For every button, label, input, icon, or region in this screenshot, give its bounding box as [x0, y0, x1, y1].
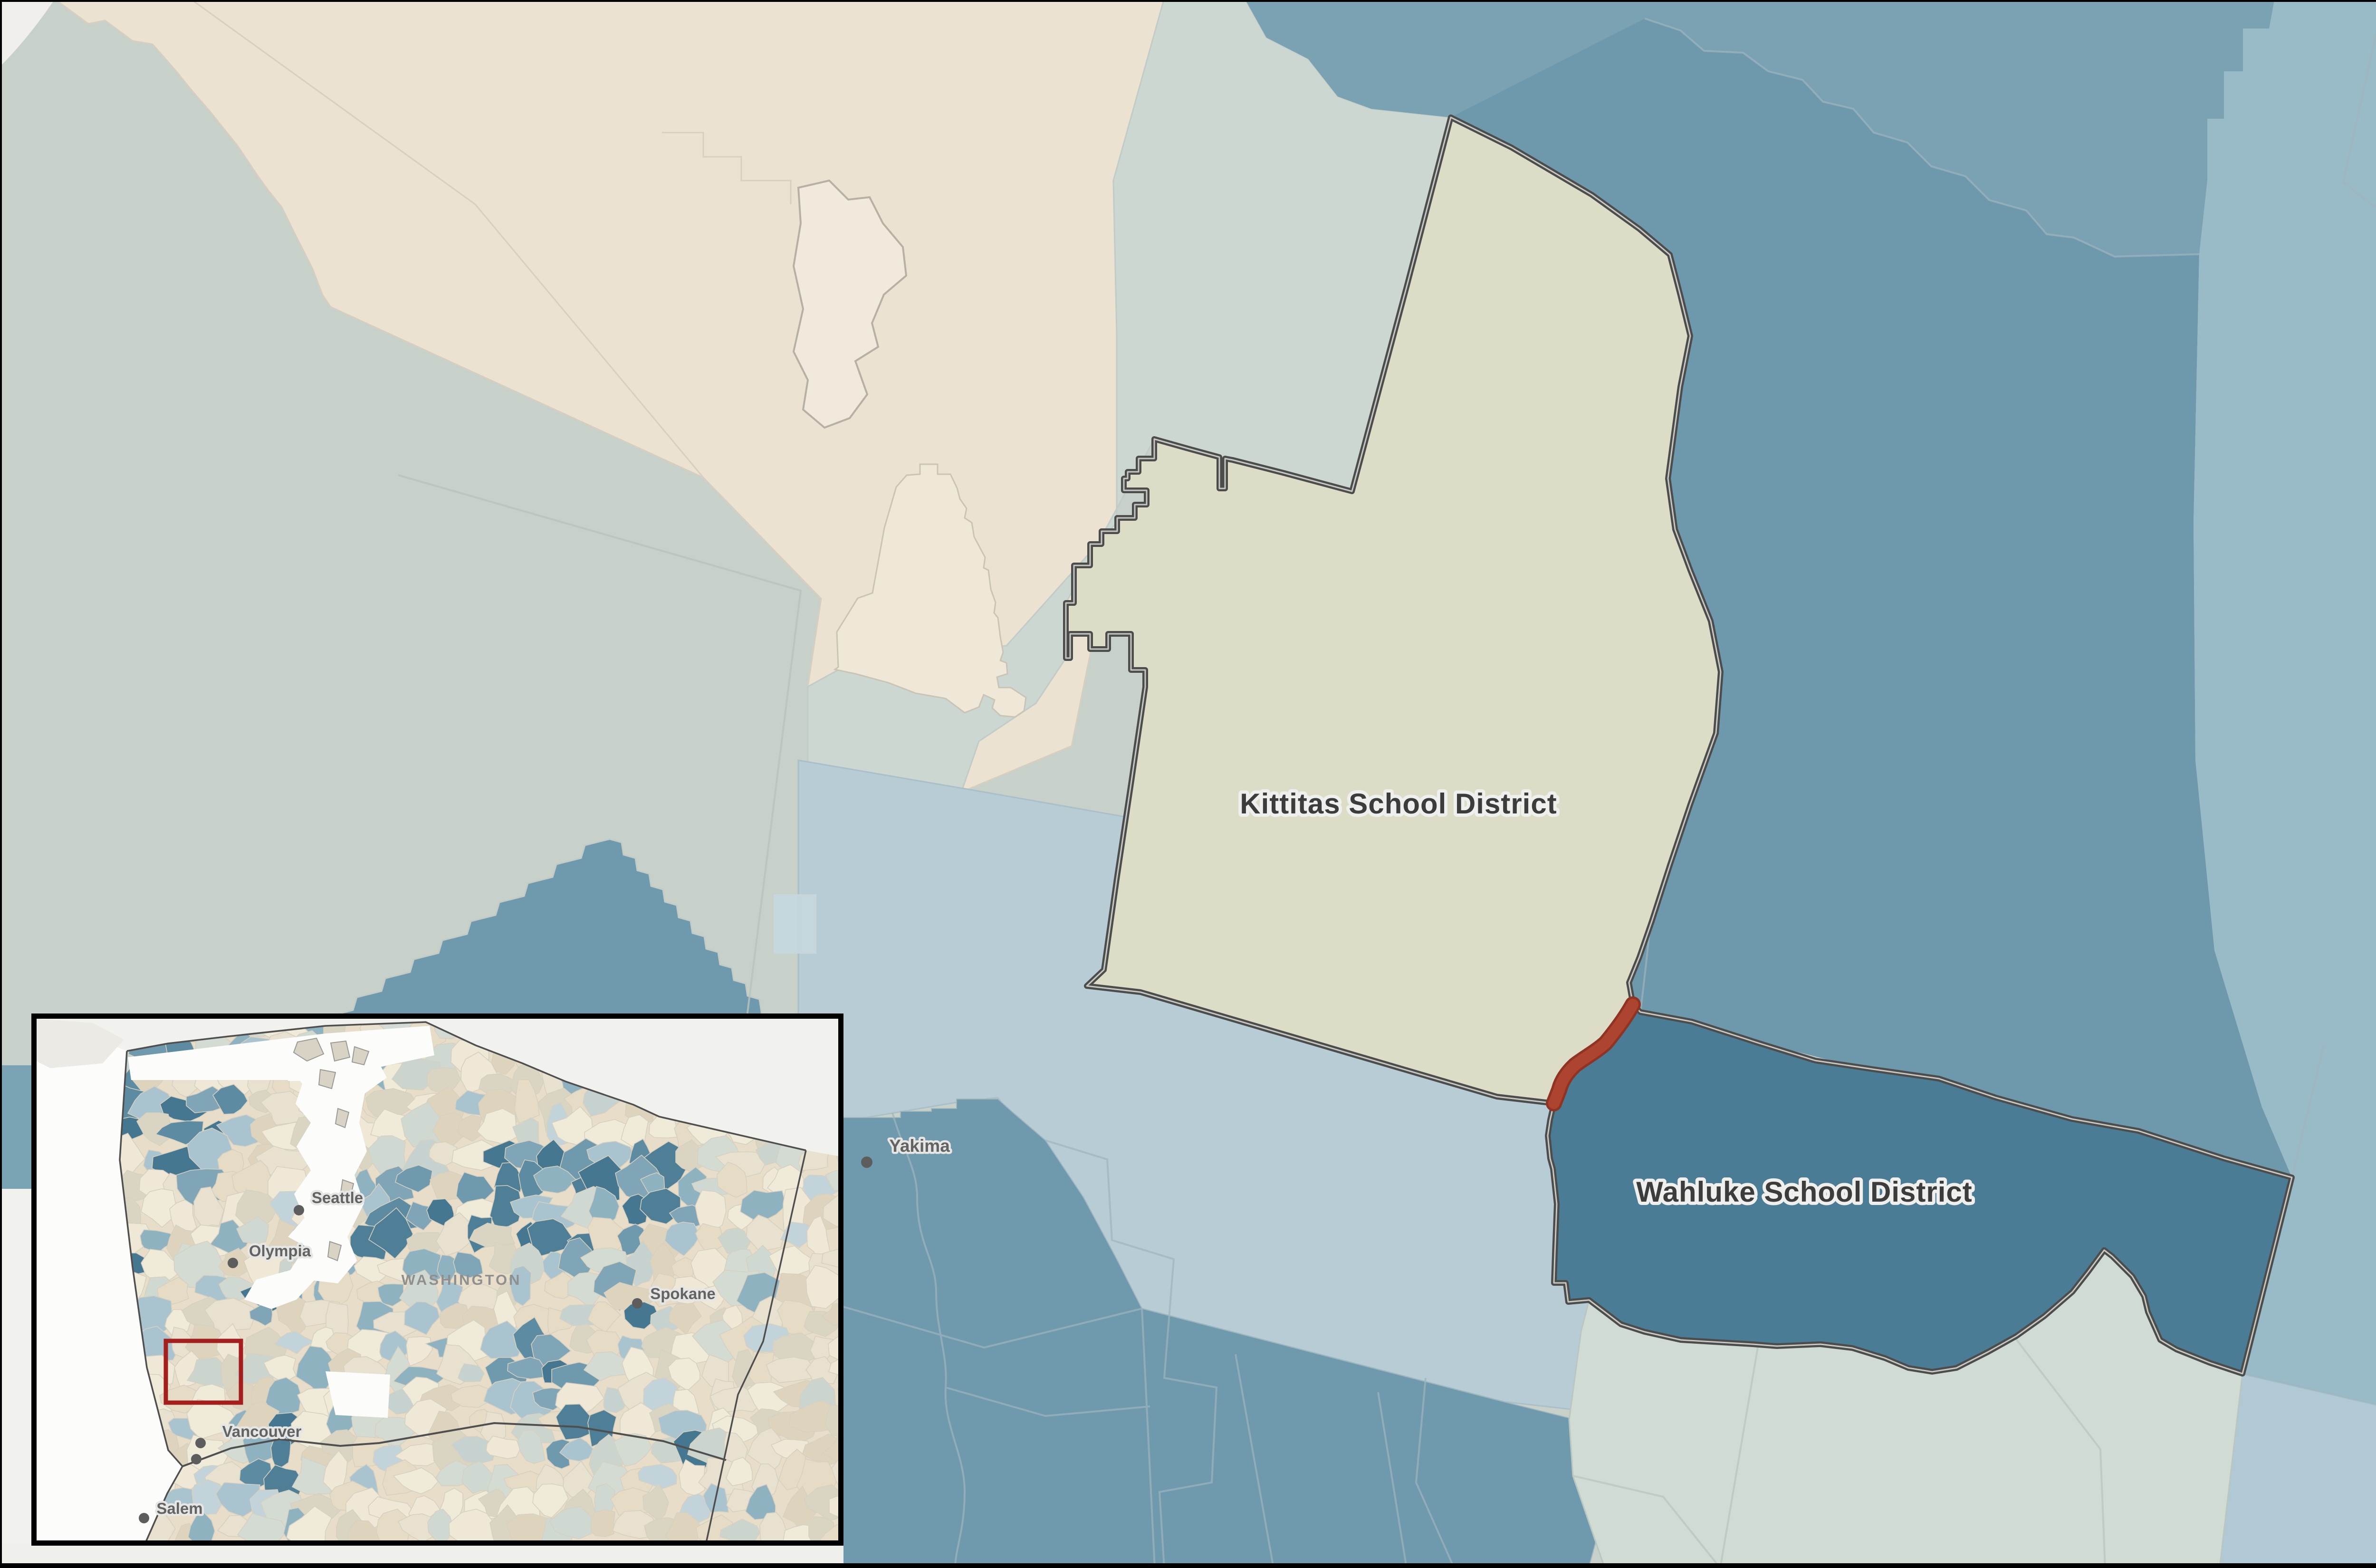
svg-text:Olympia: Olympia	[249, 1242, 311, 1260]
svg-text:Seattle: Seattle	[312, 1189, 363, 1206]
svg-text:Yakima: Yakima	[889, 1136, 950, 1156]
svg-text:Kittitas School District: Kittitas School District	[1240, 788, 1557, 820]
svg-text:Spokane: Spokane	[650, 1285, 716, 1302]
svg-text:Wahluke School District: Wahluke School District	[1636, 1176, 1973, 1208]
svg-text:WASHINGTON: WASHINGTON	[402, 1272, 522, 1288]
svg-text:Salem: Salem	[156, 1500, 202, 1517]
svg-text:Vancouver: Vancouver	[222, 1423, 302, 1440]
